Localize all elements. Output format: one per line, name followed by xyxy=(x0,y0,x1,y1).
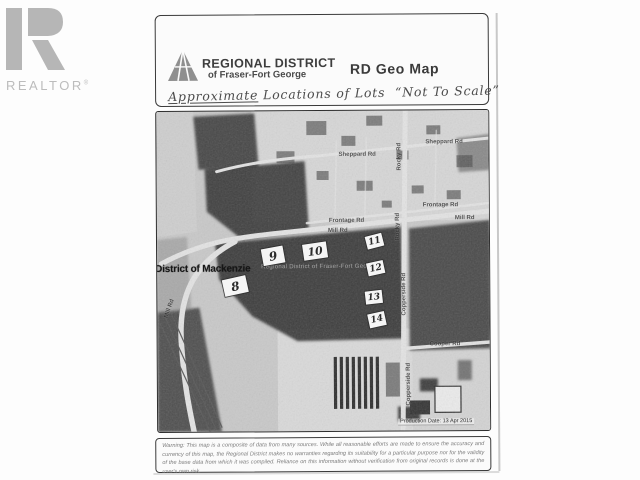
label-frontage-rd-2: Frontage Rd xyxy=(423,202,458,208)
label-sheppard-rd-2: Sheppard Rd xyxy=(425,139,462,145)
document: REGIONAL DISTRICT of Fraser-Fort George … xyxy=(149,5,504,477)
realtor-r-icon xyxy=(6,8,68,72)
map-title: RD Geo Map xyxy=(350,60,439,77)
aerial-map: Sheppard Rd Sheppard Rd Frontage Rd Mill… xyxy=(155,109,491,433)
annotation-not-to-scale: “Not To Scale” xyxy=(395,83,500,100)
label-copperside-rd-2: Copperside Rd xyxy=(406,363,412,406)
org-subname: of Fraser-Fort George xyxy=(208,69,306,81)
watermark-label: Regional District of Fraser-Fort George xyxy=(261,264,376,271)
label-rocky-rd-2: Rocky Rd xyxy=(395,213,401,241)
label-copperside-rd-1: Copperside Rd xyxy=(401,273,407,316)
label-cooper-rd: Cooper Rd xyxy=(430,341,461,347)
lot-marker-10: 10 xyxy=(302,241,328,260)
annotation-word-approximate: Approximate xyxy=(168,87,258,104)
disclaimer-text: Warning: This map is a composite of data… xyxy=(162,440,484,477)
map-header-box: REGIONAL DISTRICT of Fraser-Fort George … xyxy=(155,13,490,107)
handwritten-annotation: Approximate Locations of Lots “Not To Sc… xyxy=(168,83,484,104)
scanned-map-page: REALTOR® REGIONAL DISTRICT of Fraser-For… xyxy=(0,0,640,480)
city-label: District of Mackenzie xyxy=(155,263,250,275)
label-frontage-rd-1: Frontage Rd xyxy=(329,218,364,224)
production-date-label: Production Date: 13 Apr 2015 xyxy=(398,418,474,425)
realtor-label: REALTOR® xyxy=(6,78,96,93)
lot-marker-13: 13 xyxy=(365,290,383,305)
label-sheppard-rd-1: Sheppard Rd xyxy=(338,152,375,158)
label-mill-rd-1: Mill Rd xyxy=(328,228,348,234)
label-mill-rd-2: Mill Rd xyxy=(455,215,475,221)
disclaimer-box: Warning: This map is a composite of data… xyxy=(155,436,491,473)
annotation-words-locations: Locations of Lots xyxy=(263,85,386,102)
realtor-logo: REALTOR® xyxy=(6,8,96,93)
rdffg-triangle-icon xyxy=(168,50,198,84)
registered-mark: ® xyxy=(84,81,88,87)
label-rocky-rd-1: Rocky Rd xyxy=(396,143,402,171)
